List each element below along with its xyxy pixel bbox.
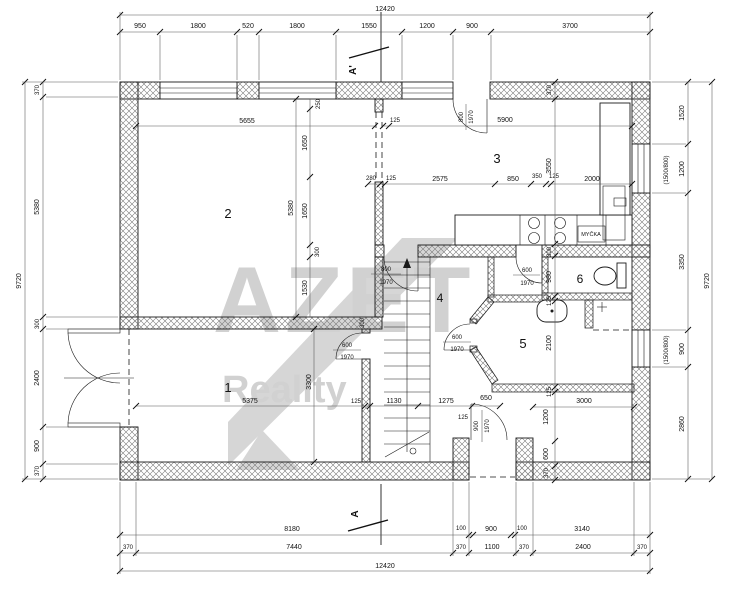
door-kitchen-width: 800 bbox=[459, 111, 465, 122]
door-bath-height: 1970 bbox=[450, 347, 464, 353]
dim: 1650 bbox=[302, 135, 309, 151]
door-bath-width: 600 bbox=[452, 335, 463, 341]
room-label-4: 4 bbox=[437, 291, 444, 305]
dim: 300 bbox=[360, 317, 366, 328]
room-label-6: 6 bbox=[577, 272, 584, 286]
dim: 1520 bbox=[679, 105, 686, 121]
dim: 900 bbox=[34, 440, 41, 452]
dim: 350 bbox=[532, 174, 543, 180]
dim-left-total: 9720 bbox=[16, 273, 23, 289]
dim-top-total: 12420 bbox=[375, 6, 395, 13]
watermark-sub: Reality bbox=[222, 369, 347, 411]
dim: 300 bbox=[35, 318, 41, 329]
dim: 900 bbox=[679, 343, 686, 355]
dim: 1200 bbox=[679, 161, 686, 177]
watermark-brand: AZET bbox=[213, 247, 474, 352]
dim: 1530 bbox=[302, 280, 309, 296]
dim: 370 bbox=[35, 465, 41, 476]
dim: 370 bbox=[637, 545, 648, 551]
dim: 8180 bbox=[284, 526, 300, 533]
door-hall-width: 800 bbox=[381, 267, 392, 273]
dim-porch-width: 3000 bbox=[576, 398, 592, 405]
dim: 1550 bbox=[361, 23, 377, 30]
door-wc-width: 600 bbox=[522, 268, 533, 274]
room-label-3: 3 bbox=[493, 151, 500, 166]
dim: 100 bbox=[456, 526, 467, 532]
dim: 900 bbox=[485, 526, 497, 533]
dim: 280 bbox=[366, 176, 377, 182]
dim: 125 bbox=[458, 415, 469, 421]
dim: 2860 bbox=[679, 416, 686, 432]
section-label-bottom: A bbox=[350, 510, 361, 517]
room-label-1: 1 bbox=[224, 380, 231, 395]
dim-room1-width: 5375 bbox=[242, 398, 258, 405]
dim: 125 bbox=[386, 176, 397, 182]
dim: 2000 bbox=[584, 176, 600, 183]
dim: 3700 bbox=[562, 23, 578, 30]
dim: 125 bbox=[547, 386, 553, 397]
dim: 2575 bbox=[432, 176, 448, 183]
dim: 370 bbox=[544, 467, 550, 478]
dim: 3350 bbox=[679, 254, 686, 270]
dim: 850 bbox=[507, 176, 519, 183]
floor-plan-page: AZET Reality bbox=[0, 0, 732, 595]
window-right-2 bbox=[632, 330, 650, 367]
room-label-5: 5 bbox=[519, 336, 526, 351]
dim: 370 bbox=[547, 84, 553, 95]
window-top-2 bbox=[259, 82, 336, 99]
dim: 1800 bbox=[190, 23, 206, 30]
dim: 1275 bbox=[438, 398, 454, 405]
dim: 7440 bbox=[286, 544, 302, 551]
dim-room1-height: 3300 bbox=[306, 374, 313, 390]
door-wc-height: 1970 bbox=[520, 281, 534, 287]
dim-window-size: (1500/800) bbox=[664, 335, 670, 364]
door-hall-height: 1970 bbox=[379, 280, 393, 286]
dim: 2100 bbox=[546, 335, 553, 351]
dim: 2400 bbox=[34, 370, 41, 386]
dim: 600 bbox=[543, 448, 550, 460]
dim: 1100 bbox=[484, 544, 499, 551]
floor-plan-drawing: AZET Reality bbox=[0, 0, 732, 595]
door-entrance-height: 1970 bbox=[485, 419, 491, 433]
dim-room3-width: 5900 bbox=[497, 117, 513, 124]
dim: 100 bbox=[517, 526, 528, 532]
dim: 650 bbox=[480, 395, 492, 402]
dim: 125 bbox=[351, 399, 362, 405]
dim: 370 bbox=[123, 545, 134, 551]
dim: 250 bbox=[316, 98, 322, 109]
dim: 3140 bbox=[574, 526, 590, 533]
dim: 900 bbox=[466, 23, 478, 30]
section-label-top: A' bbox=[348, 65, 359, 75]
dim: 980 bbox=[546, 271, 553, 283]
dim: 1200 bbox=[543, 409, 550, 425]
dim: 370 bbox=[456, 545, 467, 551]
dim: 370 bbox=[35, 84, 41, 95]
dim: 1200 bbox=[419, 23, 435, 30]
dishwasher-label: MYČKA bbox=[581, 231, 601, 238]
dim: 1800 bbox=[289, 23, 305, 30]
dim: 125 bbox=[549, 174, 560, 180]
dim-bottom-total: 12420 bbox=[375, 563, 395, 570]
dim-room2-width: 5655 bbox=[239, 118, 255, 125]
dim: 5380 bbox=[34, 199, 41, 215]
dim: 1650 bbox=[302, 203, 309, 219]
dim-room2-height: 5380 bbox=[288, 200, 295, 216]
dim-right-total: 9720 bbox=[704, 273, 711, 289]
dim: 1130 bbox=[386, 398, 401, 405]
window-right-1 bbox=[632, 144, 650, 193]
door-garage-height: 1970 bbox=[340, 355, 354, 361]
window-top-3 bbox=[402, 82, 453, 99]
window-top-1 bbox=[160, 82, 237, 99]
dim: 300 bbox=[315, 246, 321, 257]
door-kitchen-height: 1970 bbox=[469, 110, 475, 124]
dim: 2400 bbox=[575, 544, 591, 551]
dim: 300 bbox=[547, 246, 553, 257]
dim: 520 bbox=[242, 23, 254, 30]
dim: 370 bbox=[519, 545, 530, 551]
door-garage-width: 600 bbox=[342, 343, 353, 349]
dim-window-size: (1500/800) bbox=[664, 155, 670, 184]
door-entrance-width: 900 bbox=[474, 420, 480, 431]
room-label-2: 2 bbox=[224, 206, 231, 221]
dim: 3550 bbox=[546, 158, 553, 174]
dim: 125 bbox=[390, 118, 401, 124]
dim: 950 bbox=[134, 23, 146, 30]
dim: 125 bbox=[547, 295, 553, 306]
